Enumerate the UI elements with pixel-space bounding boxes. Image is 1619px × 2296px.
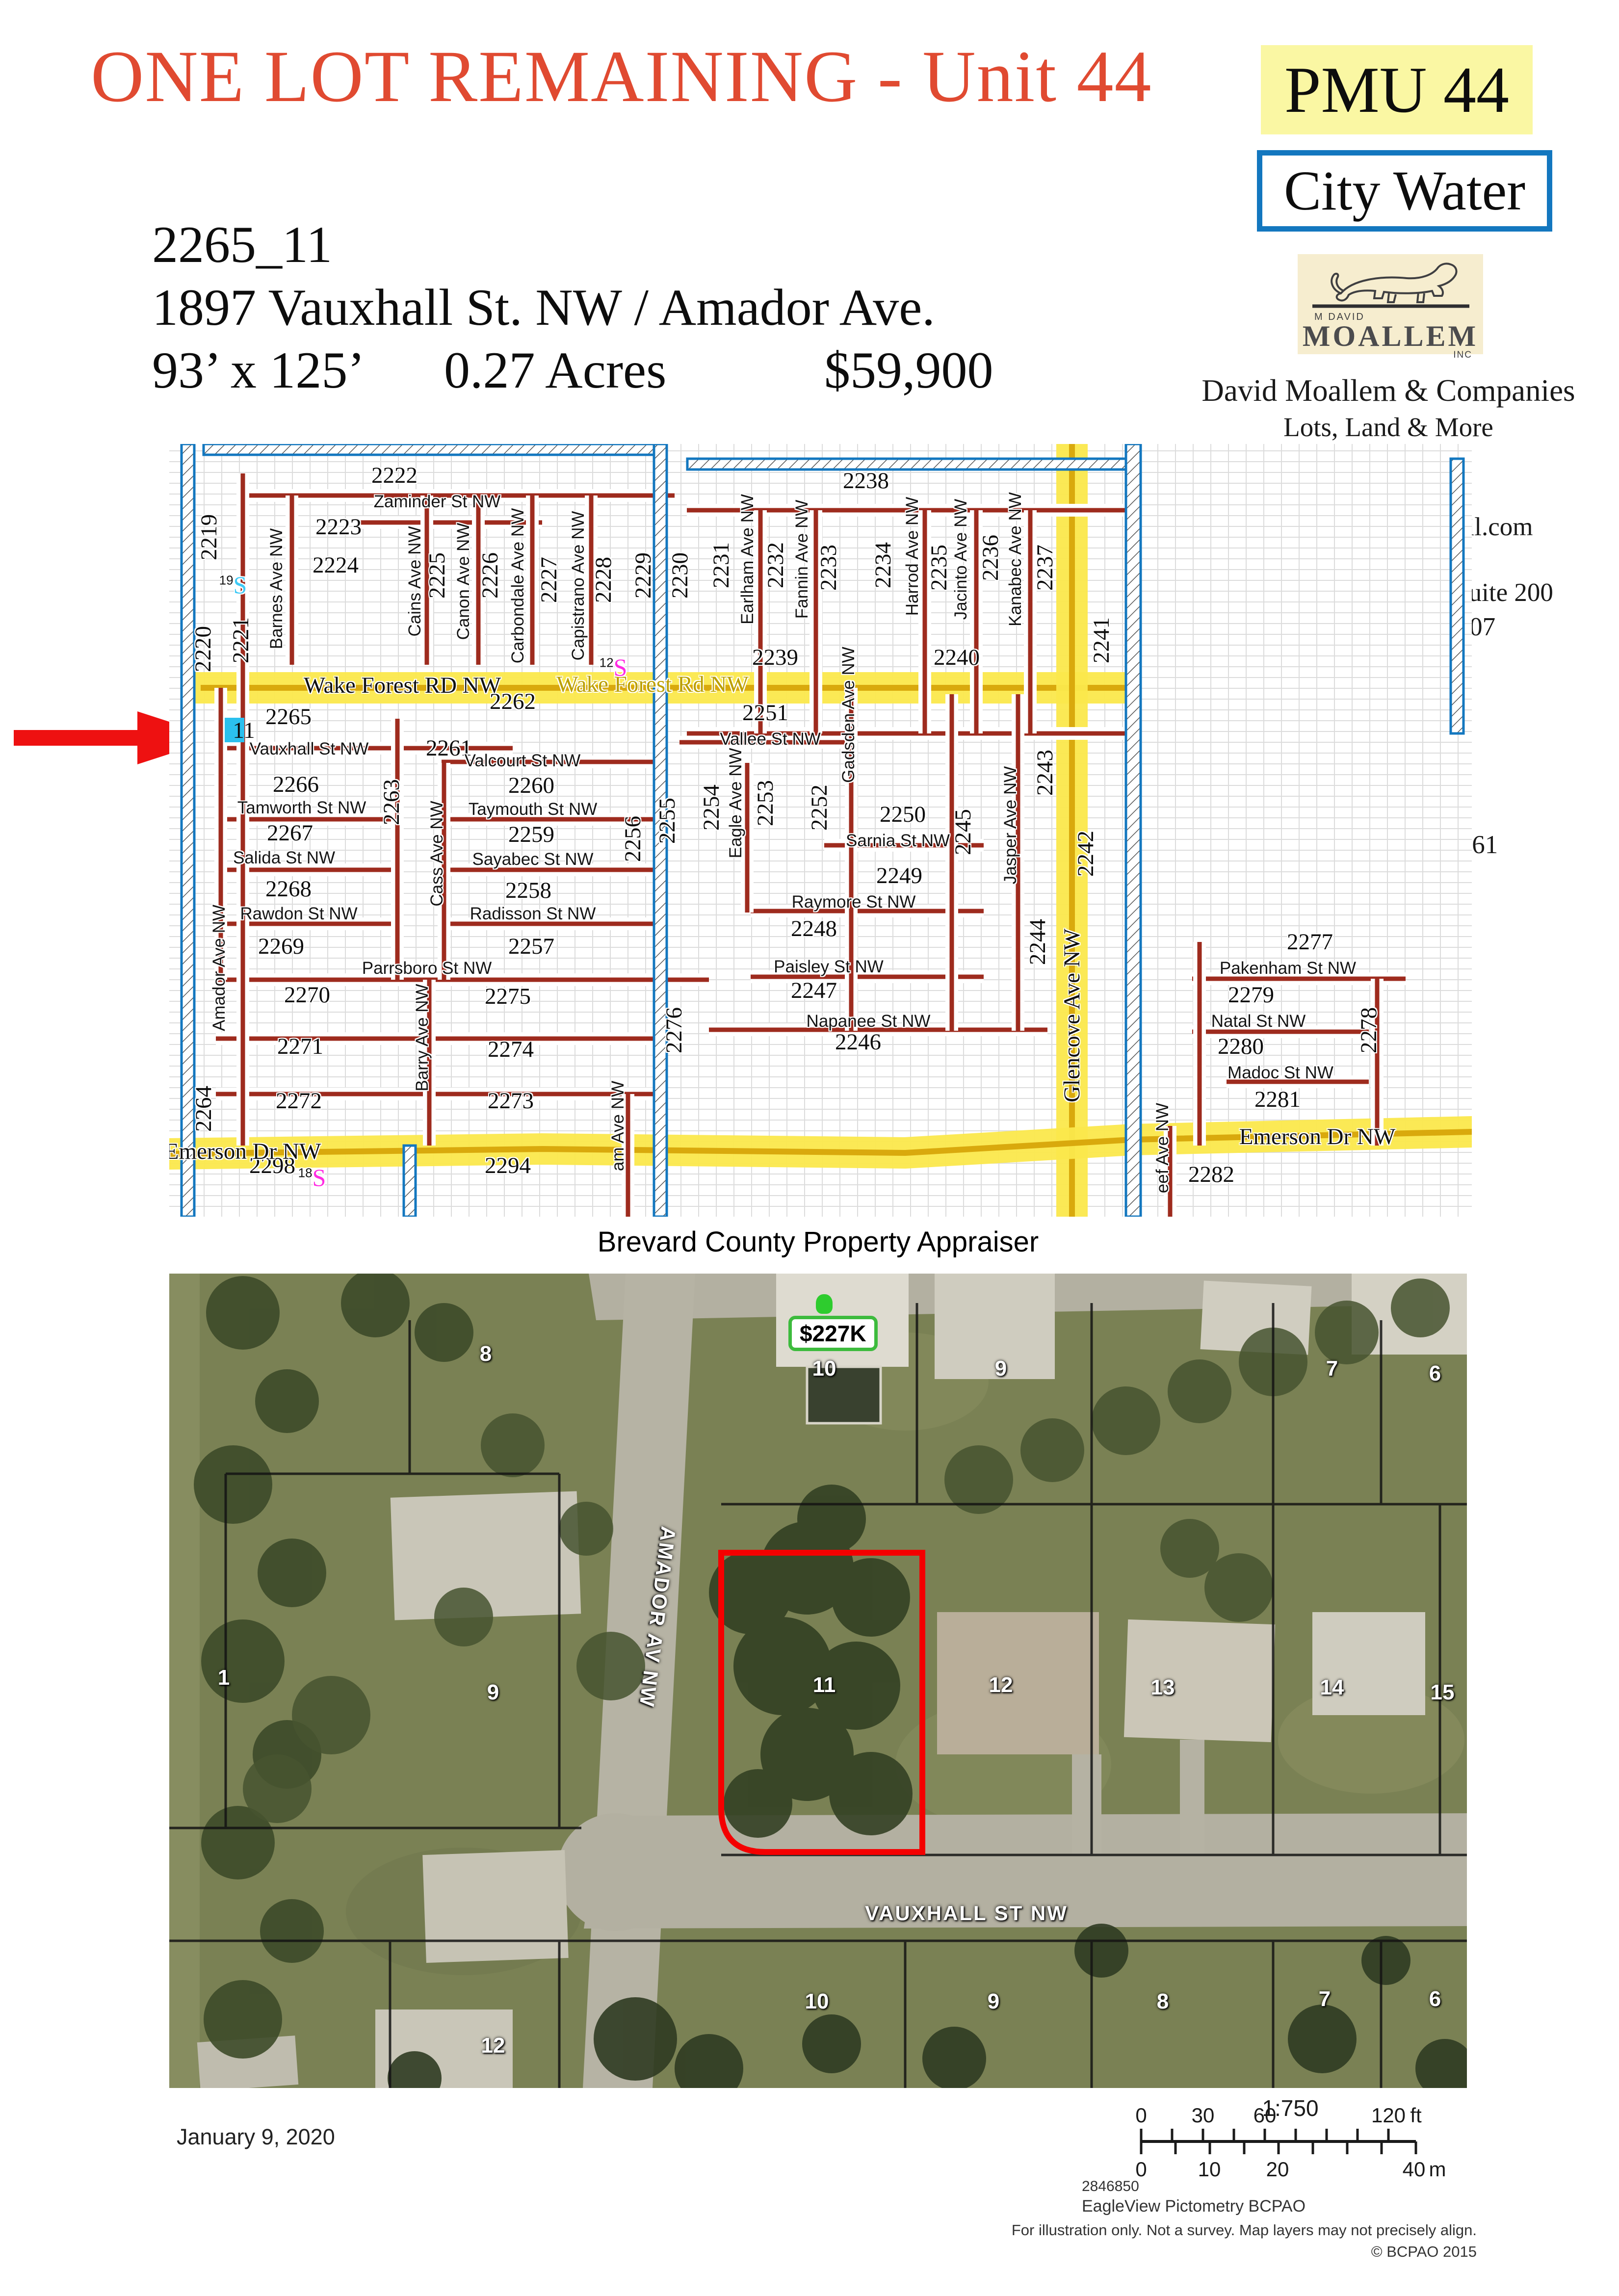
scale-m-tick: 40	[1403, 2158, 1426, 2181]
flyer-page: ONE LOT REMAINING - Unit 44 PMU 44 City …	[0, 0, 1619, 2296]
scale-m-tick: 10	[1198, 2158, 1221, 2181]
disclaimer-line2: © BCPAO 2015	[834, 2243, 1477, 2261]
scale-ft-tick: 30	[1192, 2104, 1215, 2127]
scale-ft-tick: 60	[1253, 2104, 1277, 2127]
scale-ft-tick: 0	[1135, 2104, 1147, 2127]
scale-m-tick: 20	[1266, 2158, 1289, 2181]
map-id: 2846850	[1082, 2178, 1139, 2195]
map-source: EagleView Pictometry BCPAO	[1082, 2197, 1306, 2216]
scale-ft-tick: 120	[1371, 2104, 1406, 2127]
scale-m-unit: m	[1429, 2158, 1446, 2181]
disclaimer-line1: For illustration only. Not a survey. Map…	[834, 2221, 1477, 2239]
scale-bar	[0, 0, 1619, 2296]
scale-ft-unit: ft	[1410, 2104, 1421, 2127]
scale-m-tick: 0	[1135, 2158, 1147, 2181]
